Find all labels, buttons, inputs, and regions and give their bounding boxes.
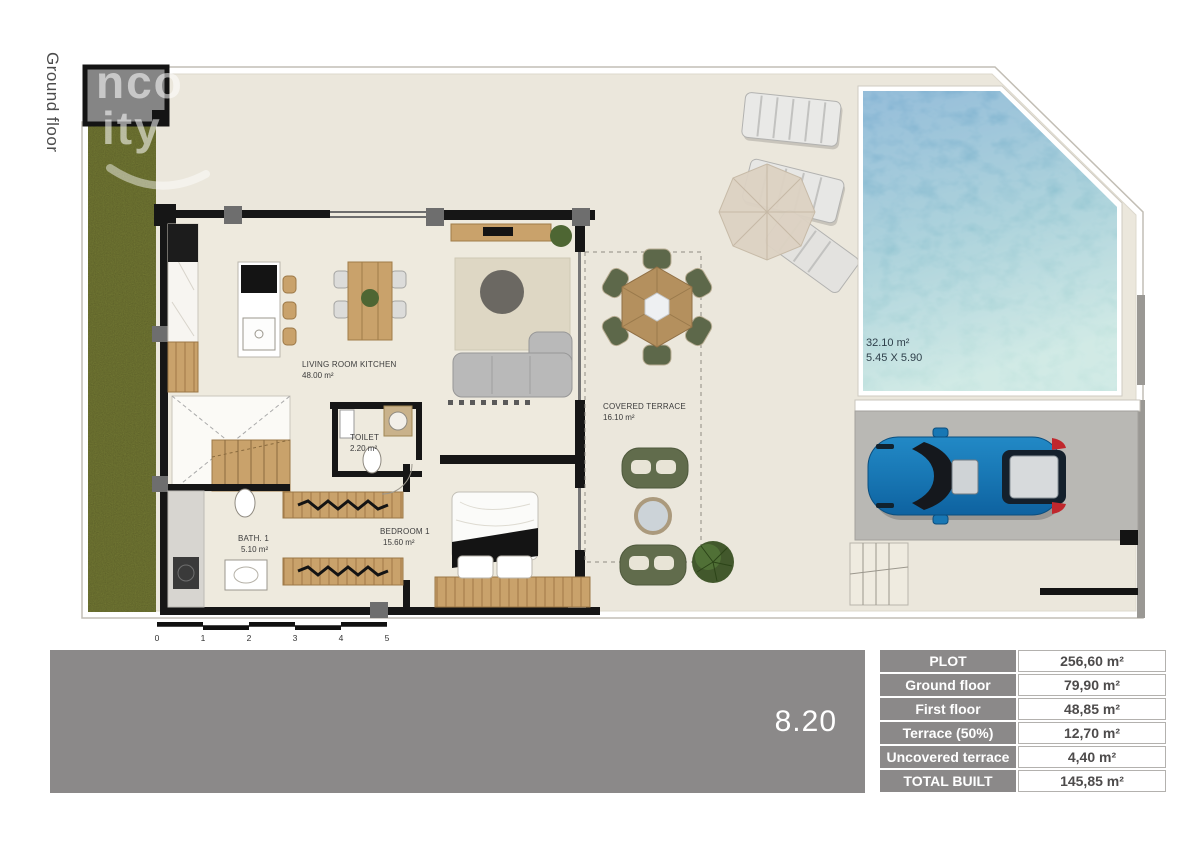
table-value-cell: 4,40 m² bbox=[1018, 746, 1166, 768]
tv bbox=[483, 227, 513, 236]
room-label: BATH. 1 bbox=[238, 534, 269, 543]
room-area: 48.00 m² bbox=[302, 371, 334, 380]
stool bbox=[283, 276, 296, 293]
room-area: 2.20 m² bbox=[350, 444, 377, 453]
plot-width-label: 8.20 bbox=[775, 705, 837, 739]
table-plant bbox=[361, 289, 379, 307]
table-label-cell: Uncovered terrace bbox=[880, 746, 1016, 768]
table-label-cell: Terrace (50%) bbox=[880, 722, 1016, 744]
scale-tick: 2 bbox=[247, 633, 252, 643]
pillow bbox=[497, 556, 532, 578]
scale-tick: 1 bbox=[201, 633, 206, 643]
beach-umbrella bbox=[719, 164, 815, 260]
room-area: 15.60 m² bbox=[383, 538, 415, 547]
table-label-cell: PLOT bbox=[880, 650, 1016, 672]
stool bbox=[283, 328, 296, 345]
pillow bbox=[458, 556, 493, 578]
swimming-pool: 32.10 m² 5.45 X 5.90 bbox=[858, 86, 1122, 396]
watermark-text: nco bbox=[96, 56, 184, 108]
plant bbox=[692, 541, 734, 583]
room-label: BEDROOM 1 bbox=[380, 527, 430, 536]
table-label-cell: TOTAL BUILT bbox=[880, 770, 1016, 792]
room-label: TOILET bbox=[350, 433, 379, 442]
watermark-text: ity bbox=[102, 102, 162, 154]
car bbox=[868, 428, 1066, 524]
scale-tick: 5 bbox=[385, 633, 390, 643]
washing-machine bbox=[173, 557, 199, 589]
plant bbox=[550, 225, 572, 247]
stool bbox=[283, 302, 296, 319]
room-label: LIVING ROOM KITCHEN bbox=[302, 360, 396, 369]
table-value-cell: 256,60 m² bbox=[1018, 650, 1166, 672]
stairs bbox=[172, 396, 290, 491]
room-area: 5.10 m² bbox=[241, 545, 268, 554]
round-rug bbox=[480, 270, 524, 314]
kitchen-island bbox=[238, 262, 280, 357]
footer-bar: 8.20 bbox=[50, 650, 865, 793]
table-label-cell: First floor bbox=[880, 698, 1016, 720]
floor-plan: nco ity bbox=[40, 40, 1160, 650]
room-label: COVERED TERRACE bbox=[603, 402, 686, 411]
table-label-cell: Ground floor bbox=[880, 674, 1016, 696]
table-value-cell: 79,90 m² bbox=[1018, 674, 1166, 696]
table-value-cell: 145,85 m² bbox=[1018, 770, 1166, 792]
retaining-wall bbox=[1137, 295, 1145, 385]
scale-tick: 3 bbox=[293, 633, 298, 643]
table-value-cell: 12,70 m² bbox=[1018, 722, 1166, 744]
areas-table: PLOT 256,60 m² Ground floor 79,90 m² Fir… bbox=[880, 650, 1166, 792]
scale-tick: 0 bbox=[155, 633, 160, 643]
table-value-cell: 48,85 m² bbox=[1018, 698, 1166, 720]
scale-bar: 0 1 2 3 4 5 bbox=[155, 622, 390, 643]
garden-strip bbox=[88, 122, 156, 612]
bed-headboard bbox=[435, 577, 590, 607]
coffee-table bbox=[636, 499, 670, 533]
pool-area-label: 32.10 m² bbox=[866, 337, 910, 349]
house: LIVING ROOM KITCHEN 48.00 m² TOILET 2.20… bbox=[152, 204, 600, 618]
exterior-steps bbox=[850, 543, 908, 605]
pool-dimensions-label: 5.45 X 5.90 bbox=[866, 352, 922, 364]
room-area: 16.10 m² bbox=[603, 413, 635, 422]
scale-tick: 4 bbox=[339, 633, 344, 643]
